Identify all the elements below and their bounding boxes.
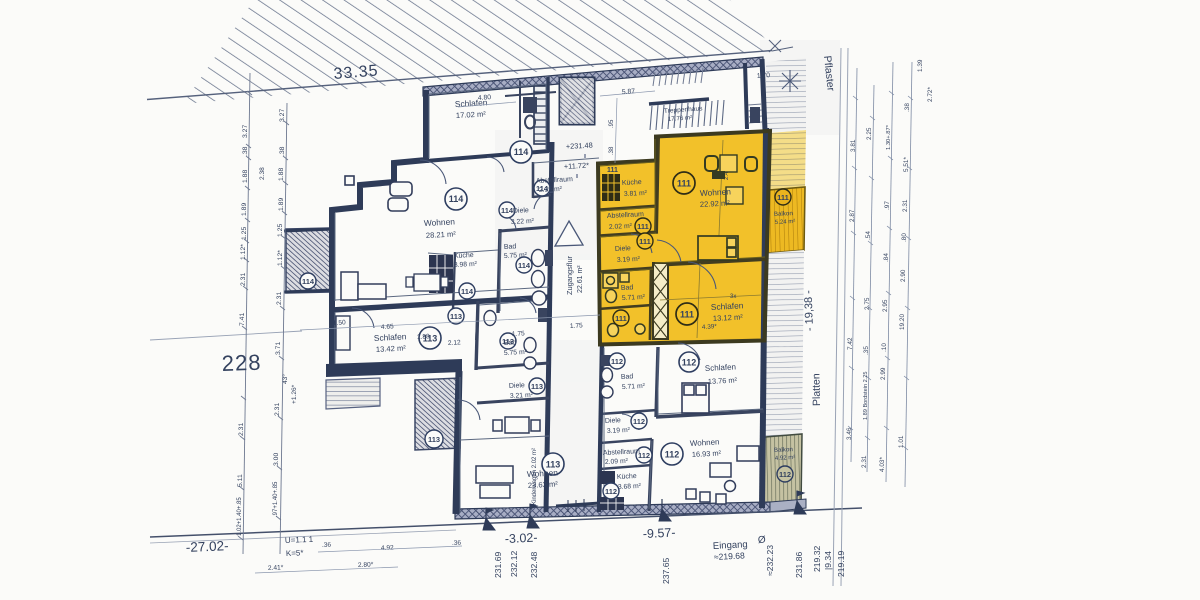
svg-text:Diele: Diele — [605, 417, 621, 425]
svg-text:Diele: Diele — [509, 382, 525, 390]
svg-text:Kinderwagen 2.02 m²: Kinderwagen 2.02 m² — [532, 448, 538, 505]
svg-text:1.12*: 1.12* — [277, 250, 284, 266]
svg-text:113: 113 — [531, 382, 543, 391]
svg-text:4.80: 4.80 — [478, 94, 492, 102]
svg-text:2.90: 2.90 — [900, 269, 907, 282]
svg-text:113: 113 — [450, 312, 462, 321]
svg-text:5.24 m²: 5.24 m² — [775, 219, 796, 226]
svg-text:114: 114 — [461, 287, 474, 296]
svg-text:3.98 m²: 3.98 m² — [454, 261, 478, 269]
svg-text:1.88: 1.88 — [417, 333, 431, 341]
svg-text:5.71 m²: 5.71 m² — [622, 294, 646, 302]
svg-text:1.25: 1.25 — [241, 227, 248, 240]
svg-text:112: 112 — [682, 357, 697, 367]
svg-text:.38: .38 — [279, 146, 286, 156]
svg-text:1.88: 1.88 — [242, 170, 249, 183]
svg-text:≈232.23: ≈232.23 — [765, 545, 775, 576]
svg-text:17.02 m²: 17.02 m² — [456, 109, 487, 120]
svg-text:2.72*: 2.72* — [927, 87, 934, 102]
svg-text:5.51*: 5.51* — [903, 157, 910, 172]
svg-text:7.41: 7.41 — [239, 313, 246, 326]
svg-text:3.46: 3.46 — [846, 427, 853, 440]
svg-text:114: 114 — [514, 147, 529, 157]
svg-text:232.12: 232.12 — [509, 550, 519, 577]
svg-text:1.39: 1.39 — [917, 59, 924, 72]
svg-text:1.25: 1.25 — [277, 224, 284, 237]
svg-text:112: 112 — [665, 449, 680, 459]
svg-text:1.02+1.40+.85: 1.02+1.40+.85 — [237, 497, 243, 536]
svg-text:.36: .36 — [322, 542, 332, 549]
svg-text:.38: .38 — [904, 103, 911, 112]
svg-text:.95: .95 — [609, 119, 615, 128]
svg-text:2.09 m²: 2.09 m² — [605, 458, 629, 466]
svg-text:3.71: 3.71 — [275, 342, 282, 355]
svg-text:Platten: Platten — [810, 373, 823, 406]
svg-text:219.19: 219.19 — [836, 550, 846, 577]
svg-text:232.48: 232.48 — [529, 551, 539, 578]
svg-text:.38: .38 — [609, 146, 615, 155]
svg-text:2.31: 2.31 — [240, 273, 247, 286]
svg-text:28.21 m²: 28.21 m² — [426, 229, 457, 240]
svg-text:112: 112 — [605, 487, 617, 496]
svg-text:4.92: 4.92 — [381, 544, 394, 552]
svg-text:13.76 m²: 13.76 m² — [708, 375, 738, 386]
svg-text:+1.26*: +1.26* — [291, 384, 298, 404]
svg-text:2.02 m²: 2.02 m² — [609, 223, 633, 231]
svg-text:1.89: 1.89 — [241, 203, 248, 216]
svg-text:2.35 m²: 2.35 m² — [539, 186, 563, 194]
svg-text:+231.48: +231.48 — [566, 141, 593, 151]
svg-text:3.68 m²: 3.68 m² — [618, 483, 642, 491]
svg-text:5.75 m²: 5.75 m² — [504, 252, 528, 260]
svg-text:2.38: 2.38 — [259, 167, 266, 180]
svg-text:111: 111 — [615, 314, 627, 323]
svg-text:Balkon: Balkon — [774, 446, 794, 454]
svg-text:3.22 m²: 3.22 m² — [511, 218, 535, 226]
svg-text:5.75 m²: 5.75 m² — [504, 349, 528, 357]
svg-text:.84: .84 — [883, 253, 890, 262]
svg-text:1.70: 1.70 — [757, 72, 771, 80]
svg-text:.54: .54 — [865, 231, 872, 240]
svg-text:1.12*: 1.12* — [240, 244, 247, 260]
svg-text:2.31: 2.31 — [274, 403, 281, 416]
svg-text:43°: 43° — [281, 374, 289, 384]
svg-text:3.27: 3.27 — [242, 125, 249, 138]
svg-text:1.30+.87*: 1.30+.87* — [886, 124, 892, 150]
svg-text:3.81 m²: 3.81 m² — [624, 190, 648, 198]
svg-text:5.71 m²: 5.71 m² — [622, 383, 646, 391]
svg-text:U=1.1 1: U=1.1 1 — [285, 535, 314, 545]
svg-text:114: 114 — [449, 194, 464, 204]
svg-text:3.00: 3.00 — [273, 453, 280, 466]
svg-text:7.42: 7.42 — [847, 337, 854, 350]
svg-text:3.27: 3.27 — [279, 109, 286, 122]
svg-text:114: 114 — [518, 261, 531, 270]
svg-text:+11.72*: +11.72* — [564, 161, 590, 171]
svg-text:1.01: 1.01 — [898, 435, 905, 448]
svg-text:.38: .38 — [242, 146, 249, 156]
svg-text:231.86: 231.86 — [794, 551, 804, 578]
svg-text:3.81: 3.81 — [850, 139, 857, 152]
svg-text:1.50: 1.50 — [333, 319, 347, 327]
svg-text:Wohnen: Wohnen — [700, 186, 732, 198]
svg-text:1.75: 1.75 — [570, 322, 584, 330]
svg-text:Diele: Diele — [513, 207, 529, 215]
svg-text:.35: .35 — [863, 346, 870, 355]
svg-text:13.42 m²: 13.42 m² — [376, 343, 407, 354]
svg-text:111: 111 — [637, 222, 649, 231]
svg-text:111: 111 — [777, 193, 789, 202]
svg-text:2.95: 2.95 — [882, 299, 889, 312]
svg-text:219.32: 219.32 — [812, 545, 822, 572]
svg-text:Schlafen: Schlafen — [374, 331, 407, 343]
svg-text:- 19,38 -: - 19,38 - — [803, 290, 816, 332]
svg-text:Schlafen: Schlafen — [705, 362, 737, 373]
svg-text:Wohnen: Wohnen — [690, 437, 720, 448]
svg-text:≈219.68: ≈219.68 — [714, 550, 746, 562]
svg-text:Bad: Bad — [621, 373, 634, 381]
svg-text:Küche: Küche — [622, 179, 642, 187]
svg-text:Wohnen: Wohnen — [424, 216, 456, 228]
svg-text:4.65: 4.65 — [381, 323, 395, 331]
svg-text:Bad: Bad — [621, 284, 634, 292]
svg-text:237.65: 237.65 — [661, 557, 671, 584]
svg-text:4.92 m²: 4.92 m² — [775, 455, 796, 462]
svg-text:1.89 Bordstein 2.25: 1.89 Bordstein 2.25 — [863, 371, 869, 420]
svg-text:Bad: Bad — [504, 339, 517, 347]
svg-text:16.93 m²: 16.93 m² — [692, 448, 722, 459]
svg-text:.10: .10 — [881, 343, 888, 352]
svg-text:2.41*: 2.41* — [268, 564, 284, 572]
svg-text:2.87: 2.87 — [849, 209, 856, 222]
svg-text:3x: 3x — [730, 294, 736, 300]
svg-text:Küche: Küche — [454, 252, 474, 260]
svg-text:22.61 m²: 22.61 m² — [577, 265, 584, 293]
svg-text:114: 114 — [302, 277, 315, 286]
svg-text:2.75: 2.75 — [864, 297, 871, 310]
svg-text:231.69: 231.69 — [493, 551, 503, 578]
svg-text:112: 112 — [611, 357, 623, 366]
svg-text:2.12: 2.12 — [448, 339, 462, 347]
svg-text:.97+1.40+.85: .97+1.40+.85 — [273, 481, 279, 517]
svg-text:3.19 m²: 3.19 m² — [617, 256, 641, 264]
svg-text:5.87: 5.87 — [622, 88, 636, 96]
svg-text:5.11: 5.11 — [237, 474, 244, 487]
svg-text:112: 112 — [779, 470, 791, 479]
svg-text:K=5*: K=5* — [286, 548, 304, 558]
svg-text:2.31: 2.31 — [238, 423, 245, 436]
svg-text:4.39*: 4.39* — [702, 323, 718, 331]
svg-text:2.25: 2.25 — [866, 127, 873, 140]
svg-text:111: 111 — [677, 178, 691, 188]
svg-text:Balkon: Balkon — [774, 210, 794, 218]
svg-text:.80: .80 — [901, 233, 908, 242]
svg-text:1.89: 1.89 — [278, 198, 285, 211]
svg-text:Ø: Ø — [758, 535, 766, 546]
svg-text:-9.57-: -9.57- — [643, 526, 676, 541]
svg-text:1.88: 1.88 — [278, 168, 285, 181]
svg-text:113: 113 — [428, 435, 440, 444]
svg-text:112: 112 — [633, 417, 645, 426]
svg-text:-27.02-: -27.02- — [185, 538, 228, 555]
svg-text:Schlafen: Schlafen — [711, 300, 744, 312]
svg-text:13.12 m²: 13.12 m² — [713, 312, 744, 323]
svg-text:Küche: Küche — [617, 473, 637, 481]
svg-text:22.92 m²: 22.92 m² — [700, 198, 731, 209]
svg-text:Bad: Bad — [504, 243, 517, 251]
svg-text:19.20: 19.20 — [899, 314, 906, 330]
svg-text:228: 228 — [221, 350, 262, 376]
svg-text:3.19 m²: 3.19 m² — [607, 427, 631, 435]
svg-text:111: 111 — [607, 167, 618, 174]
svg-text:33.35: 33.35 — [333, 62, 379, 83]
svg-text:-3.02-: -3.02- — [505, 531, 538, 546]
svg-text:111: 111 — [639, 237, 651, 246]
svg-text:2.31: 2.31 — [276, 292, 283, 305]
svg-text:4.03*: 4.03* — [879, 457, 886, 472]
svg-text:2.31: 2.31 — [861, 455, 868, 468]
svg-text:111: 111 — [680, 309, 694, 319]
svg-text:Diele: Diele — [615, 245, 631, 253]
svg-text:.97: .97 — [884, 201, 891, 210]
svg-text:1.75: 1.75 — [512, 330, 526, 338]
svg-text:Zugangsflur: Zugangsflur — [565, 255, 574, 295]
svg-text:2.31: 2.31 — [902, 199, 909, 212]
svg-text:3.21 m²: 3.21 m² — [510, 392, 534, 400]
svg-text:|9.34: |9.34 — [823, 551, 833, 570]
svg-text:2.99: 2.99 — [880, 367, 887, 380]
